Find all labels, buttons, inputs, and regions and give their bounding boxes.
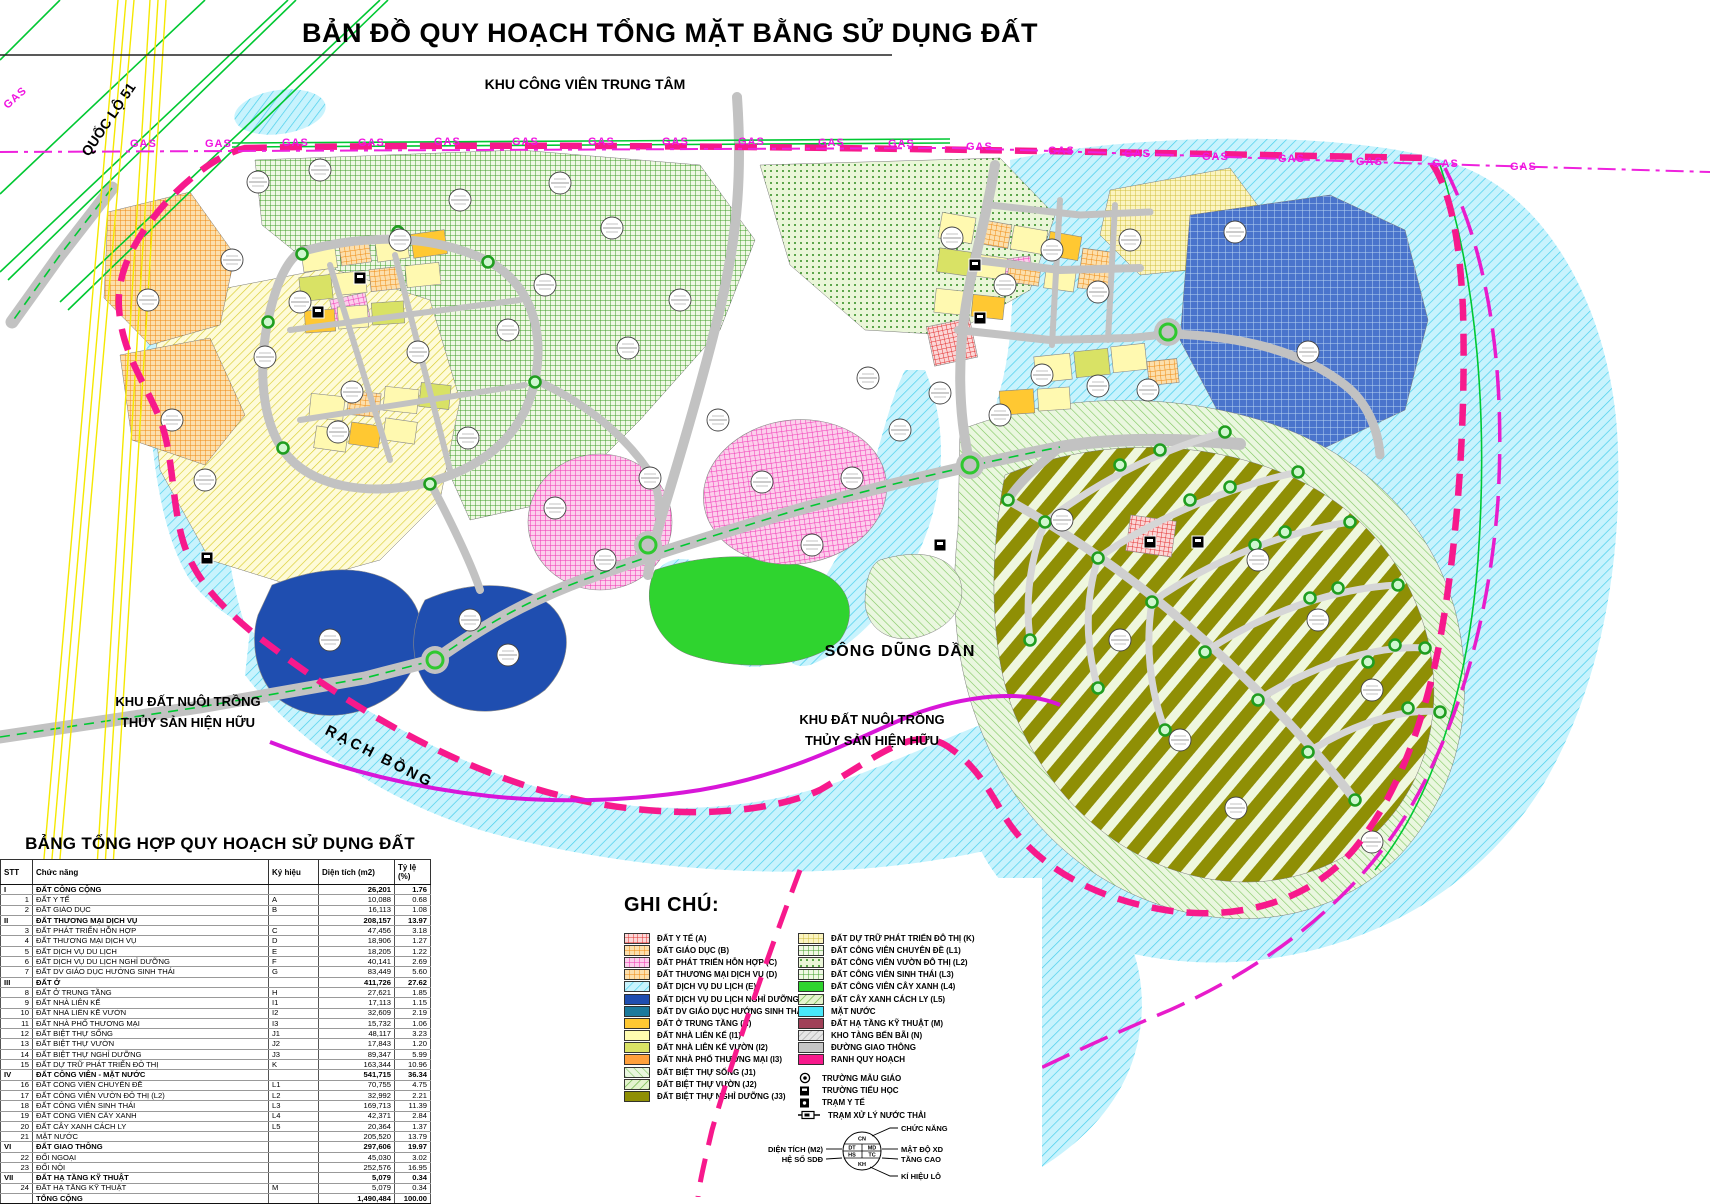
table-cell: F (269, 957, 319, 967)
table-cell: 1.37 (395, 1121, 431, 1131)
table-cell: ĐẤT THƯƠNG MẠI DỊCH VỤ (33, 915, 269, 925)
diagram-cell-dt: DT (848, 1146, 856, 1152)
table-cell: ĐỐI NỘI (33, 1163, 269, 1173)
table-cell: 14 (1, 1049, 33, 1059)
legend-swatch (798, 1030, 824, 1041)
legend-item-label: ĐẤT Ở TRUNG TẦNG (H) (657, 1019, 751, 1028)
table-cell: 1.85 (395, 987, 431, 997)
table-cell: ĐẤT DỊCH VỤ DU LỊCH (33, 946, 269, 956)
table-row: 18ĐẤT CÔNG VIÊN SINH THÁIL3169,71311.39 (1, 1101, 431, 1111)
table-cell: 18 (1, 1101, 33, 1111)
label-central-park: KHU CÔNG VIÊN TRUNG TÂM (430, 76, 740, 92)
table-cell: 205,520 (319, 1132, 395, 1142)
table-cell: ĐỐI NGOẠI (33, 1152, 269, 1162)
legend-item: ĐẤT DỊCH VỤ DU LỊCH NGHỈ DƯỠNG (F) (624, 993, 818, 1005)
legend-item-label: ĐẤT THƯƠNG MẠI DỊCH VỤ (D) (657, 970, 777, 979)
table-cell: 6 (1, 957, 33, 967)
legend-item: ĐẤT BIỆT THỰ SỐNG (J1) (624, 1066, 818, 1078)
table-cell: M (269, 1183, 319, 1193)
table-row: 13ĐẤT BIỆT THỰ VƯỜNJ217,8431.20 (1, 1039, 431, 1049)
table-cell: 15 (1, 1060, 33, 1070)
legend-item: ĐẤT Ở TRUNG TẦNG (H) (624, 1017, 818, 1029)
table-row: IIĐẤT THƯƠNG MẠI DỊCH VỤ208,15713.97 (1, 915, 431, 925)
legend-swatch (624, 1091, 650, 1102)
table-cell: ĐẤT NHÀ PHỐ THƯƠNG MẠI (33, 1018, 269, 1028)
table-cell: 3.02 (395, 1152, 431, 1162)
primary-school-icon (798, 1085, 814, 1097)
legend-item: ĐẤT DV GIÁO DỤC HƯỚNG SINH THÁI (G) (624, 1005, 818, 1017)
table-row: 21MẶT NƯỚC205,52013.79 (1, 1132, 431, 1142)
table-cell: 1.08 (395, 905, 431, 915)
table-cell: ĐẤT BIỆT THỰ NGHỈ DƯỠNG (33, 1049, 269, 1059)
legend-item-label: ĐẤT NHÀ LIÊN KẾ (I1) (657, 1031, 741, 1040)
table-row: 16ĐẤT CÔNG VIÊN CHUYÊN ĐỀL170,7554.75 (1, 1080, 431, 1090)
table-cell: D (269, 936, 319, 946)
legend-swatch (798, 994, 824, 1005)
table-cell: 3 (1, 926, 33, 936)
table-cell: ĐẤT CÔNG VIÊN CHUYÊN ĐỀ (33, 1080, 269, 1090)
table-cell: 16.95 (395, 1163, 431, 1173)
table-cell: ĐẤT CÔNG VIÊN - MẶT NƯỚC (33, 1070, 269, 1080)
landuse-summary-panel: BẢNG TỔNG HỢP QUY HOẠCH SỬ DỤNG ĐẤT STTC… (0, 834, 432, 1204)
table-cell: K (269, 1060, 319, 1070)
legend-item: ĐẤT GIÁO DỤC (B) (624, 944, 818, 956)
gas-pipeline-label: GAS (1048, 145, 1075, 157)
legend-item-label: RANH QUY HOẠCH (831, 1055, 905, 1064)
legend-item: ĐẤT CÔNG VIÊN VƯỜN ĐÔ THỊ (L2) (798, 956, 974, 968)
table-cell: 2.19 (395, 1008, 431, 1018)
gas-pipeline-label: GAS (1510, 161, 1537, 173)
gas-pipeline-label: GAS (662, 136, 689, 148)
table-cell: 15,732 (319, 1018, 395, 1028)
legend-swatch (798, 1042, 824, 1053)
legend-item-label: KHO TÀNG BẾN BÃI (N) (831, 1031, 922, 1040)
legend-item-label: ĐẤT CÔNG VIÊN CHUYÊN ĐỀ (L1) (831, 946, 961, 955)
legend-item: ĐẤT DỰ TRỮ PHÁT TRIỂN ĐÔ THỊ (K) (798, 932, 974, 944)
gas-pipeline-label: GAS (1202, 151, 1229, 163)
legend-swatch (624, 1030, 650, 1041)
table-cell: H (269, 987, 319, 997)
table-cell: ĐẤT Ở TRUNG TẦNG (33, 987, 269, 997)
legend-item: ĐẤT CÔNG VIÊN CÂY XANH (L4) (798, 981, 974, 993)
table-cell: 252,576 (319, 1163, 395, 1173)
table-cell: I2 (269, 1008, 319, 1018)
legend-swatch (624, 1054, 650, 1065)
table-cell: 2.21 (395, 1090, 431, 1100)
table-cell: A (269, 895, 319, 905)
gas-pipeline-label: GAS (512, 136, 539, 148)
legend-item-label: ĐẤT PHÁT TRIỂN HỖN HỢP (C) (657, 958, 777, 967)
legend-item: ĐẤT BIỆT THỰ NGHỈ DƯỠNG (J3) (624, 1090, 818, 1102)
page-title: BẢN ĐỒ QUY HOẠCH TỔNG MẶT BẰNG SỬ DỤNG Đ… (300, 18, 1040, 49)
legend-swatch (624, 1067, 650, 1078)
table-row: 11ĐẤT NHÀ PHỐ THƯƠNG MẠII315,7321.06 (1, 1018, 431, 1028)
legend-symbol-label: TRƯỜNG TIỂU HỌC (822, 1086, 899, 1095)
table-cell (269, 977, 319, 987)
table-cell: B (269, 905, 319, 915)
legend-panel: GHI CHÚ: ĐẤT Y TẾ (A)ĐẤT GIÁO DỤC (B)ĐẤT… (606, 878, 1042, 1197)
legend-swatch (624, 981, 650, 992)
table-cell: 17 (1, 1090, 33, 1100)
legend-item: ĐẤT CÔNG VIÊN SINH THÁI (L3) (798, 969, 974, 981)
table-cell: L2 (269, 1090, 319, 1100)
legend-item: ĐẤT CÔNG VIÊN CHUYÊN ĐỀ (L1) (798, 944, 974, 956)
legend-swatch (798, 945, 824, 956)
legend-item: ĐẤT Y TẾ (A) (624, 932, 818, 944)
legend-symbol-item: TRẠM Y TẾ (798, 1097, 926, 1109)
table-cell: 16,113 (319, 905, 395, 915)
table-cell: 32,609 (319, 1008, 395, 1018)
table-cell: 22 (1, 1152, 33, 1162)
table-cell: ĐẤT CÔNG CỘNG (33, 885, 269, 895)
table-cell: 1.22 (395, 946, 431, 956)
table-cell: VII (1, 1173, 33, 1183)
table-cell: ĐẤT GIÁO DỤC (33, 905, 269, 915)
diagram-cell-tc: TC (868, 1153, 875, 1159)
legend-swatch (624, 1079, 650, 1090)
legend-swatch (624, 1018, 650, 1029)
table-cell: 47,456 (319, 926, 395, 936)
table-cell: 4 (1, 936, 33, 946)
table-row: 3ĐẤT PHÁT TRIỂN HỖN HỢPC47,4563.18 (1, 926, 431, 936)
table-cell: 100.00 (395, 1193, 431, 1203)
legend-symbol-item: TRƯỜNG MẪU GIÁO (798, 1072, 926, 1084)
gas-pipeline-label: GAS (205, 138, 232, 150)
legend-swatch (624, 957, 650, 968)
table-row: 17ĐẤT CÔNG VIÊN VƯỜN ĐÔ THỊ (L2)L232,992… (1, 1090, 431, 1100)
table-cell: 2.84 (395, 1111, 431, 1121)
table-cell: 36.34 (395, 1070, 431, 1080)
table-cell: 48,117 (319, 1029, 395, 1039)
table-cell: 1,490,484 (319, 1193, 395, 1203)
label-aquaculture-west: KHU ĐẤT NUÔI TRỒNG THỦY SẢN HIỆN HỮU (88, 692, 288, 734)
table-row: VIĐẤT GIAO THÔNG297,60619.97 (1, 1142, 431, 1152)
table-row: VIIĐẤT HẠ TẦNG KỸ THUẬT5,0790.34 (1, 1173, 431, 1183)
table-cell (269, 1142, 319, 1152)
legend-swatch (798, 1006, 824, 1017)
table-cell: 163,344 (319, 1060, 395, 1070)
table-title: BẢNG TỔNG HỢP QUY HOẠCH SỬ DỤNG ĐẤT (8, 834, 432, 854)
table-cell: TỔNG CỘNG (33, 1193, 269, 1203)
table-cell: 18,906 (319, 936, 395, 946)
table-cell: ĐẤT GIAO THÔNG (33, 1142, 269, 1152)
table-cell (269, 1193, 319, 1203)
table-cell: ĐẤT CÔNG VIÊN CÂY XANH (33, 1111, 269, 1121)
lot-marker-diagram: CN DT MD HS TC KH CHỨC NĂNG MẬT ĐỘ XD TẦ… (738, 1109, 1018, 1193)
table-cell: ĐẤT Ở (33, 977, 269, 987)
legend-swatch (798, 933, 824, 944)
table-row: 5ĐẤT DỊCH VỤ DU LỊCHE18,2051.22 (1, 946, 431, 956)
table-cell: J1 (269, 1029, 319, 1039)
table-row: 1ĐẤT Y TẾA10,0880.68 (1, 895, 431, 905)
table-cell: ĐẤT CÂY XANH CÁCH LY (33, 1121, 269, 1131)
table-row: 4ĐẤT THƯƠNG MẠI DỊCH VỤD18,9061.27 (1, 936, 431, 946)
legend-swatch (798, 969, 824, 980)
legend-swatch (798, 957, 824, 968)
table-cell: 9 (1, 998, 33, 1008)
legend-item: ĐẤT HẠ TẦNG KỸ THUẬT (M) (798, 1017, 974, 1029)
table-cell: 17,113 (319, 998, 395, 1008)
table-cell: 70,755 (319, 1080, 395, 1090)
table-cell: 10 (1, 1008, 33, 1018)
table-cell: 18,205 (319, 946, 395, 956)
table-cell: ĐẤT THƯƠNG MẠI DỊCH VỤ (33, 936, 269, 946)
table-cell: 0.34 (395, 1183, 431, 1193)
table-cell: 1.20 (395, 1039, 431, 1049)
gas-pipeline-label: GAS (966, 141, 993, 153)
table-cell: 11.39 (395, 1101, 431, 1111)
table-cell: ĐẤT DỰ TRỮ PHÁT TRIỂN ĐÔ THỊ (33, 1060, 269, 1070)
table-row: 22ĐỐI NGOẠI45,0303.02 (1, 1152, 431, 1162)
table-cell: L3 (269, 1101, 319, 1111)
table-cell: ĐẤT HẠ TẦNG KỸ THUẬT (33, 1183, 269, 1193)
legend-item-label: ĐẤT HẠ TẦNG KỸ THUẬT (M) (831, 1019, 943, 1028)
table-cell: III (1, 977, 33, 987)
legend-item-label: MẶT NƯỚC (831, 1007, 876, 1016)
legend-item-label: ĐẤT BIỆT THỰ SỐNG (J1) (657, 1068, 756, 1077)
legend-swatch (624, 969, 650, 980)
table-cell: ĐẤT PHÁT TRIỂN HỖN HỢP (33, 926, 269, 936)
legend-item-label: ĐẤT DV GIÁO DỤC HƯỚNG SINH THÁI (G) (657, 1007, 818, 1016)
table-cell: 1.15 (395, 998, 431, 1008)
table-row: 12ĐẤT BIỆT THỰ SỐNGJ148,1173.23 (1, 1029, 431, 1039)
legend-item-label: ĐẤT DỰ TRỮ PHÁT TRIỂN ĐÔ THỊ (K) (831, 934, 974, 943)
table-cell (269, 1132, 319, 1142)
label-river: SÔNG DŨNG DẦN (780, 643, 1020, 661)
table-cell: 10,088 (319, 895, 395, 905)
table-cell: 297,606 (319, 1142, 395, 1152)
table-cell: 42,371 (319, 1111, 395, 1121)
table-row: 7ĐẤT DV GIÁO DỤC HƯỚNG SINH THÁIG83,4495… (1, 967, 431, 977)
table-cell: 4.75 (395, 1080, 431, 1090)
landuse-summary-table: STTChức năngKý hiệuDiện tích (m2)Tỷ lệ (… (0, 859, 431, 1204)
table-cell: 27.62 (395, 977, 431, 987)
table-row: 2ĐẤT GIÁO DỤCB16,1131.08 (1, 905, 431, 915)
legend-column-left: ĐẤT Y TẾ (A)ĐẤT GIÁO DỤC (B)ĐẤT PHÁT TRI… (624, 932, 818, 1103)
table-cell: 169,713 (319, 1101, 395, 1111)
table-cell: 24 (1, 1183, 33, 1193)
table-column-header: Diện tích (m2) (319, 860, 395, 885)
legend-swatch (624, 1006, 650, 1017)
table-cell: 27,621 (319, 987, 395, 997)
legend-item: ĐẤT CÂY XANH CÁCH LY (L5) (798, 993, 974, 1005)
table-cell: G (269, 967, 319, 977)
table-cell: ĐẤT NHÀ LIÊN KẾ (33, 998, 269, 1008)
table-cell: 19 (1, 1111, 33, 1121)
label-aquaculture-south: KHU ĐẤT NUÔI TRỒNG THỦY SẢN HIỆN HỮU (772, 710, 972, 752)
table-cell: J3 (269, 1049, 319, 1059)
diagram-label-area: DIỆN TÍCH (M2) (768, 1145, 824, 1154)
table-cell: 5,079 (319, 1173, 395, 1183)
legend-item: ĐẤT BIỆT THỰ VƯỜN (J2) (624, 1078, 818, 1090)
table-cell: L4 (269, 1111, 319, 1121)
gas-pipeline-label: GAS (888, 138, 915, 150)
table-column-header: Ký hiệu (269, 860, 319, 885)
gas-pipeline-label: GAS (588, 136, 615, 148)
kindergarten-icon (798, 1072, 814, 1084)
gas-pipeline-label: GAS (1124, 148, 1151, 160)
legend-item-label: ĐẤT DỊCH VỤ DU LỊCH (E) (657, 982, 756, 991)
table-cell: 3.18 (395, 926, 431, 936)
table-cell: 2.69 (395, 957, 431, 967)
legend-item: MẶT NƯỚC (798, 1005, 974, 1017)
table-cell (269, 885, 319, 895)
table-cell: 541,715 (319, 1070, 395, 1080)
table-cell: 8 (1, 987, 33, 997)
gas-pipeline-label: GAS (434, 136, 461, 148)
diagram-label-density: MẬT ĐỘ XD (901, 1145, 944, 1154)
table-cell: 89,347 (319, 1049, 395, 1059)
table-cell: 12 (1, 1029, 33, 1039)
table-cell: ĐẤT DỊCH VỤ DU LỊCH NGHỈ DƯỠNG (33, 957, 269, 967)
table-cell: 45,030 (319, 1152, 395, 1162)
legend-item-label: ĐẤT CÔNG VIÊN CÂY XANH (L4) (831, 982, 955, 991)
table-cell: ĐẤT HẠ TẦNG KỸ THUẬT (33, 1173, 269, 1183)
legend-item-label: ĐẤT GIÁO DỤC (B) (657, 946, 729, 955)
table-row: 10ĐẤT NHÀ LIÊN KẾ VƯỜNI232,6092.19 (1, 1008, 431, 1018)
table-cell: 1 (1, 895, 33, 905)
legend-symbol-item: TRƯỜNG TIỂU HỌC (798, 1084, 926, 1096)
table-cell: IV (1, 1070, 33, 1080)
legend-swatch (624, 994, 650, 1005)
table-cell: 16 (1, 1080, 33, 1090)
table-cell: 23 (1, 1163, 33, 1173)
table-row: 23ĐỐI NỘI252,57616.95 (1, 1163, 431, 1173)
legend-swatch (624, 1042, 650, 1053)
table-cell: E (269, 946, 319, 956)
table-column-header: Tỷ lệ (%) (395, 860, 431, 885)
legend-item: RANH QUY HOẠCH (798, 1054, 974, 1066)
diagram-label-lotcode: KÍ HIỆU LÔ (901, 1172, 941, 1181)
diagram-label-height: TẦNG CAO (901, 1154, 941, 1164)
table-cell: 7 (1, 967, 33, 977)
table-cell: 5,079 (319, 1183, 395, 1193)
table-cell: L1 (269, 1080, 319, 1090)
table-row: 8ĐẤT Ở TRUNG TẦNGH27,6211.85 (1, 987, 431, 997)
table-cell: 13.79 (395, 1132, 431, 1142)
legend-item: ĐƯỜNG GIAO THÔNG (798, 1042, 974, 1054)
table-cell: ĐẤT NHÀ LIÊN KẾ VƯỜN (33, 1008, 269, 1018)
diagram-cell-hs: HS (848, 1153, 856, 1159)
legend-item-label: ĐẤT NHÀ LIÊN KẾ VƯỜN (I2) (657, 1043, 768, 1052)
health-station-icon (798, 1097, 814, 1109)
diagram-cell-kh: KH (858, 1162, 866, 1168)
table-cell: 1.27 (395, 936, 431, 946)
table-cell: 20 (1, 1121, 33, 1131)
table-cell: II (1, 915, 33, 925)
plan-sheet: { "title": "BẢN ĐỒ QUY HOẠCH TỔNG MẶT BẰ… (0, 0, 1710, 1197)
table-row: 14ĐẤT BIỆT THỰ NGHỈ DƯỠNGJ389,3475.99 (1, 1049, 431, 1059)
legend-item-label: ĐẤT NHÀ PHỐ THƯƠNG MẠI (I3) (657, 1055, 782, 1064)
table-cell: VI (1, 1142, 33, 1152)
table-cell: 32,992 (319, 1090, 395, 1100)
table-cell: I1 (269, 998, 319, 1008)
diagram-cell-md: MD (868, 1146, 877, 1152)
table-cell: I (1, 885, 33, 895)
gas-pipeline-label: GAS (1356, 156, 1383, 168)
table-cell: I3 (269, 1018, 319, 1028)
table-cell: 5 (1, 946, 33, 956)
table-cell: ĐẤT Y TẾ (33, 895, 269, 905)
table-cell: ĐẤT BIỆT THỰ VƯỜN (33, 1039, 269, 1049)
gas-pipeline-label: GAS (130, 138, 157, 150)
table-cell: 1.06 (395, 1018, 431, 1028)
legend-item: ĐẤT PHÁT TRIỂN HỖN HỢP (C) (624, 956, 818, 968)
gas-pipeline-label: GAS (358, 137, 385, 149)
legend-item: ĐẤT NHÀ LIÊN KẾ (I1) (624, 1030, 818, 1042)
table-cell (269, 1070, 319, 1080)
legend-item-label: ĐẤT BIỆT THỰ VƯỜN (J2) (657, 1080, 757, 1089)
table-cell: MẶT NƯỚC (33, 1132, 269, 1142)
legend-swatch (798, 981, 824, 992)
legend-item-label: ĐẤT Y TẾ (A) (657, 934, 706, 943)
table-cell (1, 1193, 33, 1203)
table-cell: J2 (269, 1039, 319, 1049)
table-cell: 11 (1, 1018, 33, 1028)
table-column-header: Chức năng (33, 860, 269, 885)
legend-column-right: ĐẤT DỰ TRỮ PHÁT TRIỂN ĐÔ THỊ (K)ĐẤT CÔNG… (798, 932, 974, 1066)
table-cell: 26,201 (319, 885, 395, 895)
table-cell: 83,449 (319, 967, 395, 977)
table-cell: 411,726 (319, 977, 395, 987)
table-row: TỔNG CỘNG1,490,484100.00 (1, 1193, 431, 1203)
table-cell: ĐẤT DV GIÁO DỤC HƯỚNG SINH THÁI (33, 967, 269, 977)
legend-item: KHO TÀNG BẾN BÃI (N) (798, 1030, 974, 1042)
table-cell: 20,364 (319, 1121, 395, 1131)
table-row: 19ĐẤT CÔNG VIÊN CÂY XANHL442,3712.84 (1, 1111, 431, 1121)
table-cell: 21 (1, 1132, 33, 1142)
legend-item-label: ĐẤT DỊCH VỤ DU LỊCH NGHỈ DƯỠNG (F) (657, 995, 811, 1004)
diagram-label-function: CHỨC NĂNG (901, 1124, 948, 1133)
diagram-label-far: HỆ SỐ SDĐ (782, 1154, 824, 1164)
legend-item-label: ĐẤT CÂY XANH CÁCH LY (L5) (831, 995, 945, 1004)
table-cell: C (269, 926, 319, 936)
table-cell (269, 1152, 319, 1162)
legend-item: ĐẤT THƯƠNG MẠI DỊCH VỤ (D) (624, 969, 818, 981)
table-cell: 5.99 (395, 1049, 431, 1059)
table-cell: ĐẤT CÔNG VIÊN SINH THÁI (33, 1101, 269, 1111)
table-cell (269, 915, 319, 925)
diagram-cell-cn: CN (858, 1137, 866, 1143)
table-cell (269, 1173, 319, 1183)
table-cell: 19.97 (395, 1142, 431, 1152)
table-cell: 10.96 (395, 1060, 431, 1070)
table-cell: 17,843 (319, 1039, 395, 1049)
table-header-row: STTChức năngKý hiệuDiện tích (m2)Tỷ lệ (… (1, 860, 431, 885)
legend-symbol-label: TRƯỜNG MẪU GIÁO (822, 1074, 901, 1083)
legend-symbol-label: TRẠM Y TẾ (822, 1098, 865, 1107)
table-cell: 208,157 (319, 915, 395, 925)
table-row: 24ĐẤT HẠ TẦNG KỸ THUẬTM5,0790.34 (1, 1183, 431, 1193)
legend-item: ĐẤT DỊCH VỤ DU LỊCH (E) (624, 981, 818, 993)
table-row: 9ĐẤT NHÀ LIÊN KẾI117,1131.15 (1, 998, 431, 1008)
table-cell: 0.34 (395, 1173, 431, 1183)
table-cell: 1.76 (395, 885, 431, 895)
gas-pipeline-label: GAS (282, 137, 309, 149)
table-row: IIIĐẤT Ở411,72627.62 (1, 977, 431, 987)
table-cell: 3.23 (395, 1029, 431, 1039)
legend-title: GHI CHÚ: (624, 894, 1042, 917)
table-cell (269, 1163, 319, 1173)
table-cell: 13 (1, 1039, 33, 1049)
legend-item: ĐẤT NHÀ PHỐ THƯƠNG MẠI (I3) (624, 1054, 818, 1066)
table-cell: L5 (269, 1121, 319, 1131)
table-column-header: STT (1, 860, 33, 885)
gas-pipeline-label: GAS (1278, 153, 1305, 165)
gas-pipeline-label: GAS (818, 137, 845, 149)
legend-swatch (624, 945, 650, 956)
legend-item-label: ĐẤT CÔNG VIÊN VƯỜN ĐÔ THỊ (L2) (831, 958, 968, 967)
